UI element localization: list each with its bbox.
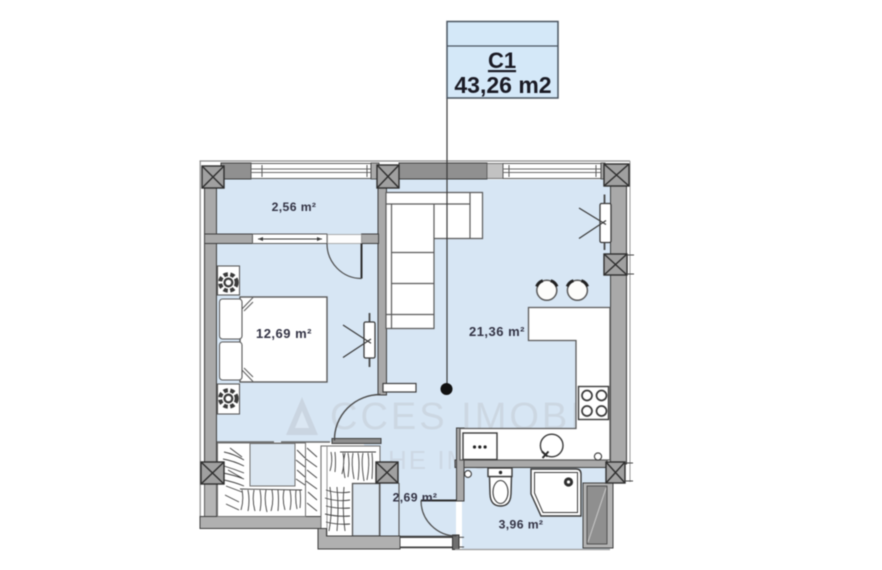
- svg-text:43,26 m2: 43,26 m2: [454, 72, 551, 98]
- svg-text:2,56 m²: 2,56 m²: [272, 200, 317, 214]
- svg-text:C1: C1: [488, 48, 516, 73]
- svg-text:2,69 m²: 2,69 m²: [393, 491, 438, 505]
- svg-text:12,69 m²: 12,69 m²: [256, 326, 312, 341]
- svg-text:21,36 m²: 21,36 m²: [469, 324, 525, 339]
- svg-text:3,96 m²: 3,96 m²: [499, 518, 544, 532]
